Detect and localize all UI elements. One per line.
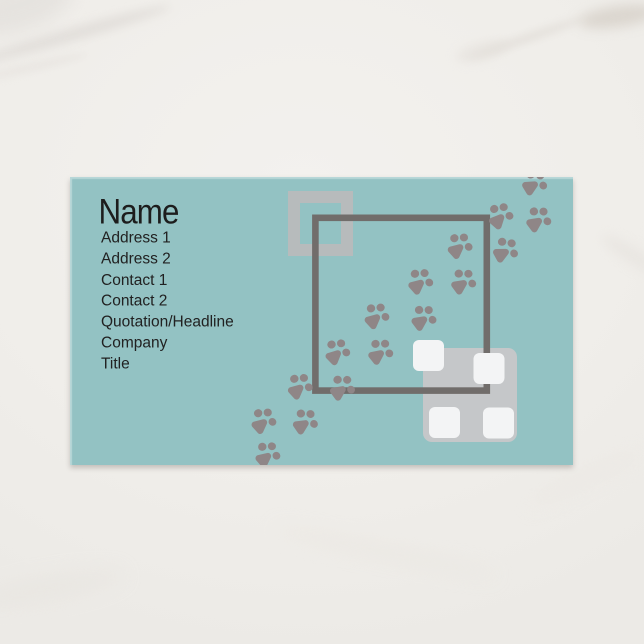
svg-text:Name: Name bbox=[99, 193, 179, 232]
svg-text:Contact 2: Contact 2 bbox=[101, 293, 167, 310]
svg-text:Title: Title bbox=[101, 356, 130, 373]
svg-text:Address 1: Address 1 bbox=[101, 230, 171, 247]
svg-text:Contact 1: Contact 1 bbox=[101, 272, 167, 289]
svg-text:Company: Company bbox=[101, 335, 168, 352]
svg-text:Address 2: Address 2 bbox=[101, 251, 171, 268]
svg-text:Quotation/Headline: Quotation/Headline bbox=[101, 314, 234, 331]
